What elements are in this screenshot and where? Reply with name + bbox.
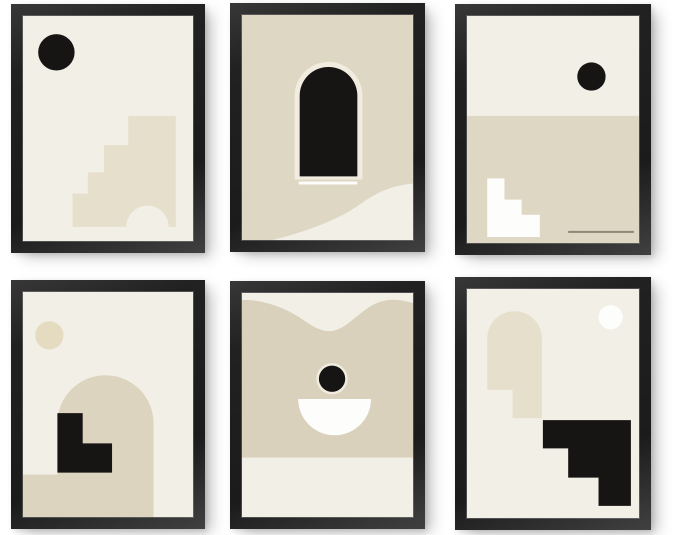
framed-print-bottom-center <box>230 281 425 529</box>
black-sun-icon <box>38 34 74 70</box>
artwork-top-right <box>467 16 639 243</box>
artwork-bottom-center <box>242 293 413 517</box>
artwork-bottom-left <box>23 292 193 517</box>
artwork-canvas <box>23 292 193 517</box>
black-arched-door-icon <box>300 67 358 176</box>
horizontal-line-icon <box>568 231 634 233</box>
framed-print-bottom-right <box>455 277 651 530</box>
product-photo <box>0 0 679 535</box>
artwork-canvas <box>23 16 193 241</box>
artwork-canvas <box>242 15 413 240</box>
framed-print-top-center <box>230 3 425 252</box>
artwork-bottom-right <box>467 289 639 518</box>
framed-print-top-right <box>455 4 651 255</box>
artwork-top-left <box>23 16 193 241</box>
artwork-top-center <box>242 15 413 240</box>
white-moon-icon <box>599 305 623 329</box>
ground-band-icon <box>23 475 154 517</box>
black-circle-icon <box>319 366 345 392</box>
framed-print-bottom-left <box>11 280 205 529</box>
beige-sun-icon <box>35 321 63 349</box>
artwork-canvas <box>467 16 639 243</box>
artwork-canvas <box>242 293 413 517</box>
black-sun-icon <box>577 62 605 90</box>
arch-underline-icon <box>299 181 358 184</box>
framed-print-top-left <box>11 4 205 253</box>
page: { "page": { "background": "#ffffff" }, "… <box>0 0 679 535</box>
artwork-canvas <box>467 289 639 518</box>
